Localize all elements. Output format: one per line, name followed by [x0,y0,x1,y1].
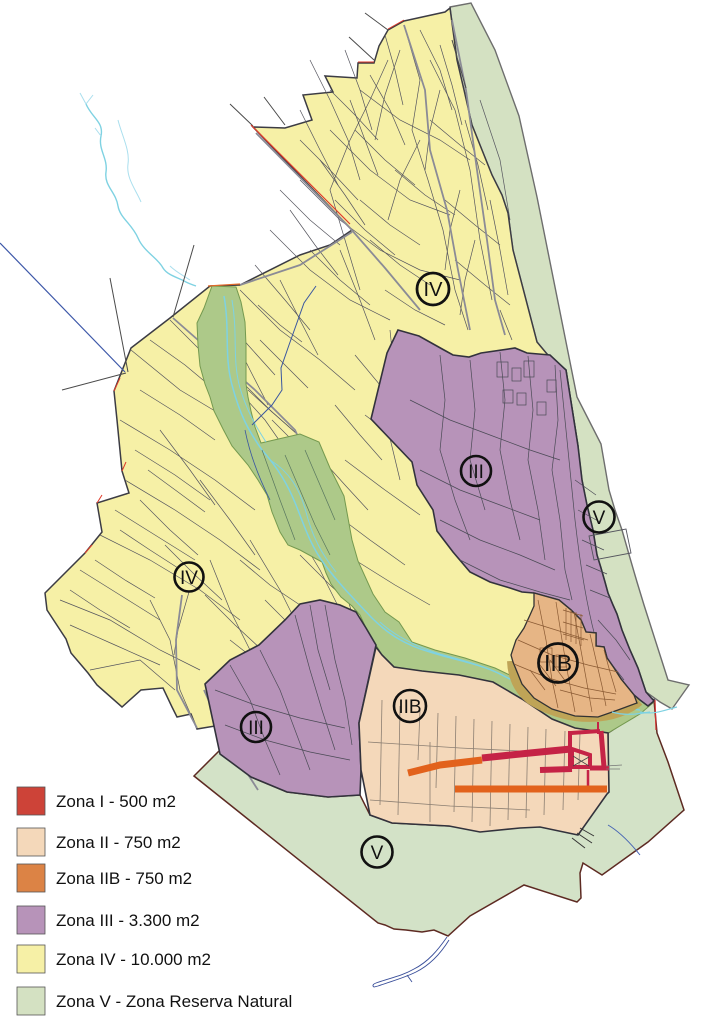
svg-text:IIB: IIB [544,650,572,676]
svg-text:V: V [593,508,606,529]
svg-text:Zona IV - 10.000 m2: Zona IV - 10.000 m2 [56,950,211,969]
svg-text:III: III [468,462,484,483]
svg-text:III: III [248,718,264,739]
svg-text:IV: IV [180,568,198,589]
svg-text:Zona IIB - 750 m2: Zona IIB - 750 m2 [56,869,192,888]
svg-text:Zona II - 750 m2: Zona II - 750 m2 [56,833,181,852]
svg-text:Zona III - 3.300 m2: Zona III - 3.300 m2 [56,911,200,930]
svg-text:IIB: IIB [398,697,421,718]
svg-text:Zona I - 500 m2: Zona I - 500 m2 [56,792,176,811]
svg-text:IV: IV [424,279,444,301]
svg-text:Zona V - Zona Reserva Natural: Zona V - Zona Reserva Natural [56,992,292,1011]
svg-text:V: V [371,843,384,864]
